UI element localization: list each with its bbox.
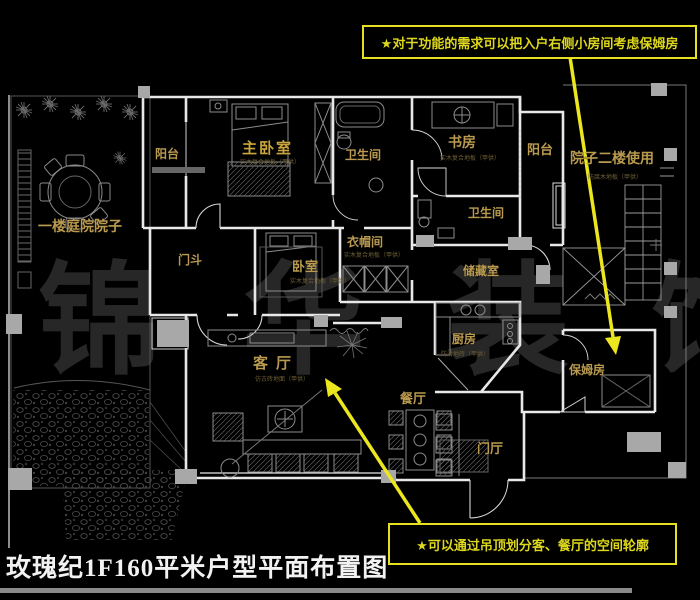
room-label-foyer: 门厅: [477, 438, 503, 457]
room-sub-cloakroom: 实木复合地板（甲供）: [344, 250, 404, 259]
room-label-vestibule: 门斗: [178, 251, 202, 268]
room-label-bedroom2: 卧室: [292, 256, 318, 275]
arrowhead-up-left: [325, 378, 342, 397]
room-sub-courtyard-2f: 防腐木地板（甲供）: [588, 172, 642, 181]
balcony-railing: [152, 167, 205, 173]
wall-details: [152, 122, 585, 412]
page-title: 玫瑰纪1F160平米户型平面布置图: [6, 548, 388, 584]
room-label-garden: 一楼庭院院子: [38, 216, 122, 236]
note-top: ★对于功能的需求可以把入户右侧小房间考虑保姆房: [362, 25, 697, 59]
room-label-storage: 储藏室: [463, 262, 499, 279]
arrowhead-down: [605, 336, 621, 355]
note-bottom: ★可以通过吊顶划分客、餐厅的空间轮廓: [388, 523, 677, 565]
room-label-dining-room: 餐厅: [400, 388, 426, 407]
room-label-bath2: 卫生间: [468, 204, 504, 221]
room-label-master-bedroom: 主卧室: [242, 137, 293, 158]
room-label-cloakroom: 衣帽间: [347, 233, 383, 250]
room-label-balcony-left: 阳台: [155, 145, 179, 162]
room-label-balcony-right: 阳台: [527, 139, 553, 158]
garden-stone-path: [13, 380, 186, 540]
room-sub-living-room: 仿古砖地面（甲供）: [255, 374, 309, 383]
room-label-study: 书房: [448, 132, 476, 152]
room-sub-study: 实木复合地板（甲供）: [440, 153, 500, 162]
staircase: [563, 185, 662, 305]
room-sub-bedroom2: 实木复合地板（甲供）: [290, 276, 350, 285]
room-label-master-bath: 卫生间: [345, 146, 381, 163]
floorplan-drawing: [0, 0, 700, 600]
room-label-kitchen: 厨房: [452, 330, 476, 347]
garden-trees: [16, 96, 138, 164]
room-label-nanny-room: 保姆房: [569, 361, 605, 378]
room-sub-kitchen: 防滑地砖（甲供）: [441, 349, 489, 358]
room-sub-master-bedroom: 实木复合地板（甲供）: [240, 157, 300, 166]
room-label-courtyard-2f: 院子二楼使用: [570, 148, 654, 168]
room-label-living-room: 客厅: [253, 352, 299, 373]
bottom-frame-line: [0, 588, 632, 593]
floorplan-canvas: 锦 华 装 饰: [0, 0, 700, 600]
